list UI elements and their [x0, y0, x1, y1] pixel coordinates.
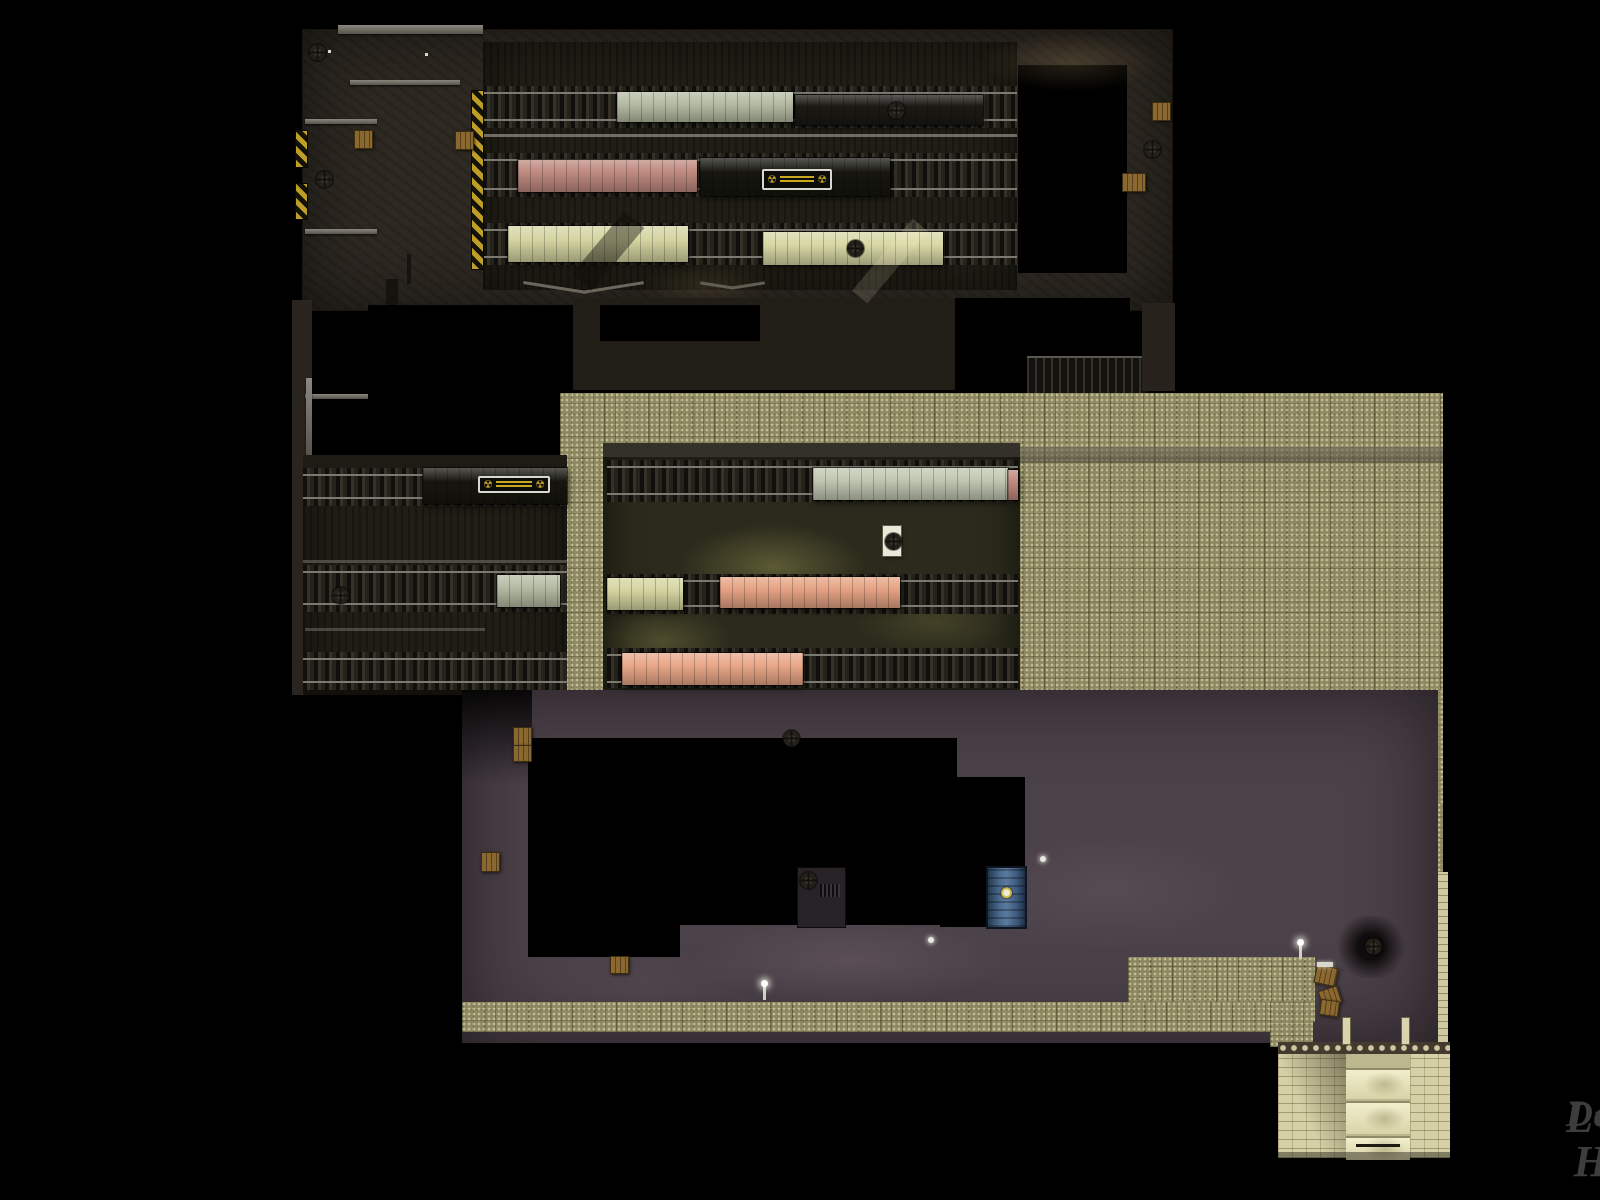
- fan-icon: [783, 730, 800, 747]
- crate-icon: [610, 956, 629, 974]
- fan-icon: [885, 533, 902, 550]
- crate-icon: [1152, 102, 1171, 121]
- crate-icon: [513, 745, 532, 762]
- crate-icon: [354, 130, 373, 149]
- props-layer: ☢☢☢☢: [0, 0, 1600, 1200]
- fan-icon: [800, 872, 817, 889]
- fan-icon: [316, 171, 333, 188]
- radiation-icon: ☢: [483, 479, 493, 490]
- crate-icon: [1122, 173, 1146, 192]
- crate-icon: [1319, 999, 1340, 1017]
- blue-radiation-door: [988, 868, 1025, 927]
- railcar-white-mid: [497, 575, 560, 607]
- sign-text-bar: [780, 176, 814, 183]
- railcar-salmon-shed-2: [622, 653, 803, 685]
- fan-icon: [1365, 938, 1382, 955]
- watermark-line2: Database: [1566, 1096, 1600, 1133]
- radiation-icon: ☢: [767, 174, 777, 185]
- railcar-cream-shed: [607, 578, 683, 610]
- railcar-white-shed: [813, 468, 1008, 500]
- crate-icon: [513, 727, 532, 746]
- lamp-icon: [1299, 944, 1302, 959]
- lamp-icon: [763, 985, 766, 1000]
- radiation-sign-mid: ☢☢: [478, 476, 550, 493]
- fan-icon: [847, 240, 864, 257]
- railcar-white-top: [617, 92, 793, 122]
- crate-icon: [455, 131, 474, 150]
- fan-icon: [1144, 141, 1161, 158]
- crate-icon: [1313, 964, 1338, 987]
- fan-icon: [332, 587, 349, 604]
- radiation-sign-top: ☢☢: [762, 169, 832, 190]
- railcar-salmon-shed-1: [720, 577, 900, 608]
- radiation-icon: ☢: [817, 174, 827, 185]
- crate-icon: [481, 852, 500, 872]
- fan-icon: [888, 102, 905, 119]
- lamp-icon: [1317, 962, 1333, 967]
- railcar-pink-stub-shed: [1008, 470, 1018, 500]
- sign-text-bar: [496, 481, 532, 488]
- railcar-pink-top: [518, 160, 697, 192]
- fan-icon: [309, 44, 326, 61]
- radiation-icon: ☢: [535, 479, 545, 490]
- lamp-icon: [1040, 856, 1046, 862]
- level-map-scene: ☢☢☢☢ LvL HD Database: [0, 0, 1600, 1200]
- lamp-icon: [928, 937, 934, 943]
